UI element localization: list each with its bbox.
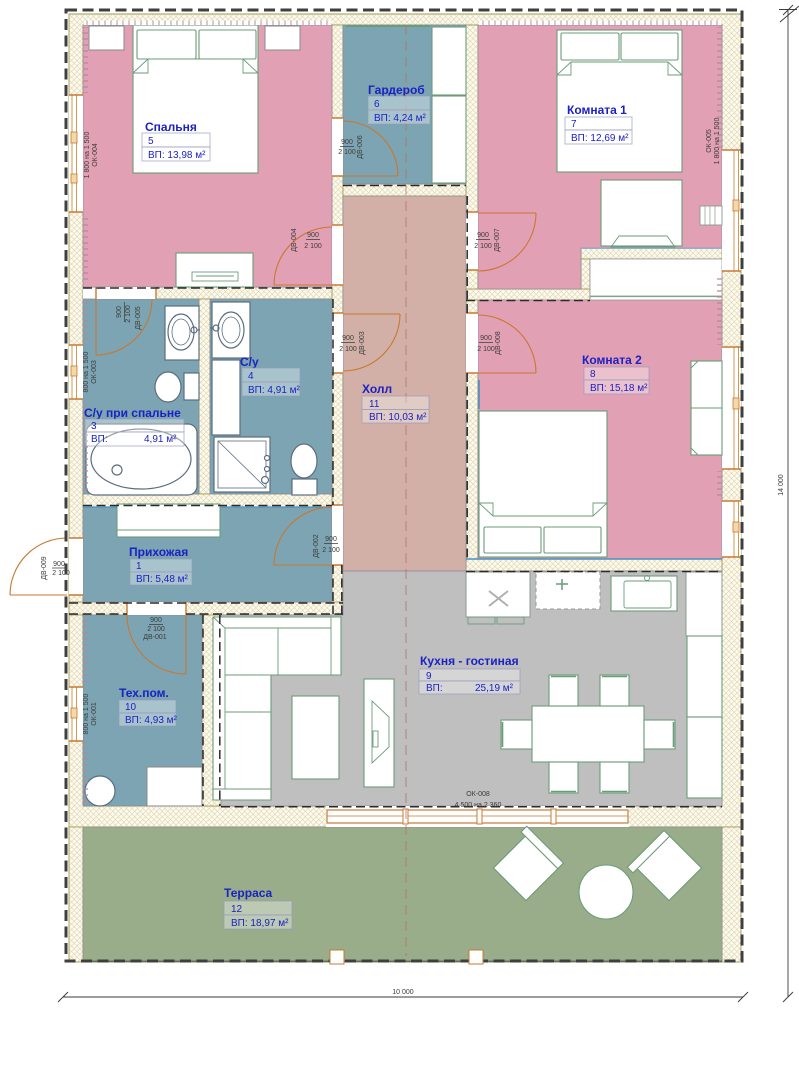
svg-text:Комната 2: Комната 2 [582,353,642,367]
svg-text:ДВ-008: ДВ-008 [495,331,502,355]
svg-text:900: 900 [150,617,162,624]
svg-text:8: 8 [590,369,596,380]
svg-text:2 100: 2 100 [322,547,340,554]
svg-text:ВП: 4,93 м²: ВП: 4,93 м² [125,715,178,726]
svg-text:ВП:: ВП: [91,434,108,445]
svg-text:25,19 м²: 25,19 м² [475,683,514,694]
svg-text:ВП:: ВП: [426,683,443,694]
svg-text:2 100: 2 100 [147,626,165,633]
svg-text:4: 4 [248,371,254,382]
svg-text:2 100: 2 100 [474,243,492,250]
svg-text:2 100: 2 100 [52,570,70,577]
svg-text:Прихожая: Прихожая [129,545,188,559]
svg-text:2 100: 2 100 [477,346,495,353]
svg-text:900: 900 [342,335,354,342]
svg-text:ВП: 15,18 м²: ВП: 15,18 м² [590,383,648,394]
svg-text:900: 900 [307,232,319,239]
svg-text:Терраса: Терраса [224,886,273,900]
svg-text:1: 1 [136,561,142,572]
svg-text:ДВ-001: ДВ-001 [143,634,167,641]
svg-text:14 000: 14 000 [778,474,785,496]
svg-text:ВП: 13,98 м²: ВП: 13,98 м² [148,150,206,161]
svg-text:Комната 1: Комната 1 [567,103,627,117]
svg-text:ВП: 5,48 м²: ВП: 5,48 м² [136,574,189,585]
svg-text:2 100: 2 100 [339,346,357,353]
svg-text:2 100: 2 100 [338,149,356,156]
svg-text:ОК-004: ОК-004 [92,143,99,167]
svg-text:900: 900 [480,335,492,342]
svg-text:3: 3 [91,421,97,432]
svg-text:ВП: 10,03 м²: ВП: 10,03 м² [369,412,427,423]
svg-text:ВП: 4,91 м²: ВП: 4,91 м² [248,385,301,396]
svg-text:1 800 на 1 500: 1 800 на 1 500 [714,118,721,165]
svg-text:ДВ-004: ДВ-004 [291,228,298,252]
svg-text:ДВ-003: ДВ-003 [359,331,366,355]
svg-text:ДВ-005: ДВ-005 [135,306,142,330]
svg-text:4 500 на 2 360: 4 500 на 2 360 [455,802,502,809]
svg-text:С/у при спальне: С/у при спальне [84,406,181,420]
svg-text:900: 900 [477,232,489,239]
svg-text:9: 9 [426,671,432,682]
svg-text:ВП: 18,97 м²: ВП: 18,97 м² [231,918,289,929]
svg-text:5: 5 [148,136,154,147]
svg-text:12: 12 [231,904,243,915]
svg-text:4,91 м²: 4,91 м² [144,434,177,445]
svg-text:ОК-005: ОК-005 [706,129,713,153]
svg-text:900: 900 [53,561,65,568]
svg-text:Тех.пом.: Тех.пом. [119,686,169,700]
svg-text:Гардероб: Гардероб [368,83,425,97]
svg-text:ОК-001: ОК-001 [91,702,98,726]
svg-text:ВП: 4,24 м²: ВП: 4,24 м² [374,113,427,124]
svg-text:Кухня - гостиная: Кухня - гостиная [420,654,519,668]
svg-text:Холл: Холл [362,382,392,396]
svg-text:С/у: С/у [240,355,259,369]
svg-text:ДВ-007: ДВ-007 [494,228,501,252]
svg-text:10: 10 [125,702,137,713]
svg-text:ДВ-006: ДВ-006 [357,135,364,159]
svg-text:ДВ-009: ДВ-009 [41,556,48,580]
svg-text:900: 900 [116,306,123,318]
svg-text:2 100: 2 100 [125,305,132,323]
svg-text:800 на 1 500: 800 на 1 500 [83,351,90,392]
svg-text:ДВ-002: ДВ-002 [313,534,320,558]
svg-text:7: 7 [571,119,577,130]
svg-text:11: 11 [369,399,380,410]
svg-text:2 100: 2 100 [304,243,322,250]
svg-text:ВП: 12,69 м²: ВП: 12,69 м² [571,133,629,144]
svg-text:Спальня: Спальня [145,120,197,134]
svg-text:1 800 на 1 500: 1 800 на 1 500 [84,132,91,179]
svg-text:900: 900 [325,536,337,543]
svg-text:ОК-008: ОК-008 [466,791,490,798]
svg-text:800 на 1 500: 800 на 1 500 [83,693,90,734]
svg-text:ОК-003: ОК-003 [91,360,98,384]
svg-text:10 000: 10 000 [392,989,414,996]
svg-text:6: 6 [374,99,380,110]
svg-text:900: 900 [341,139,353,146]
